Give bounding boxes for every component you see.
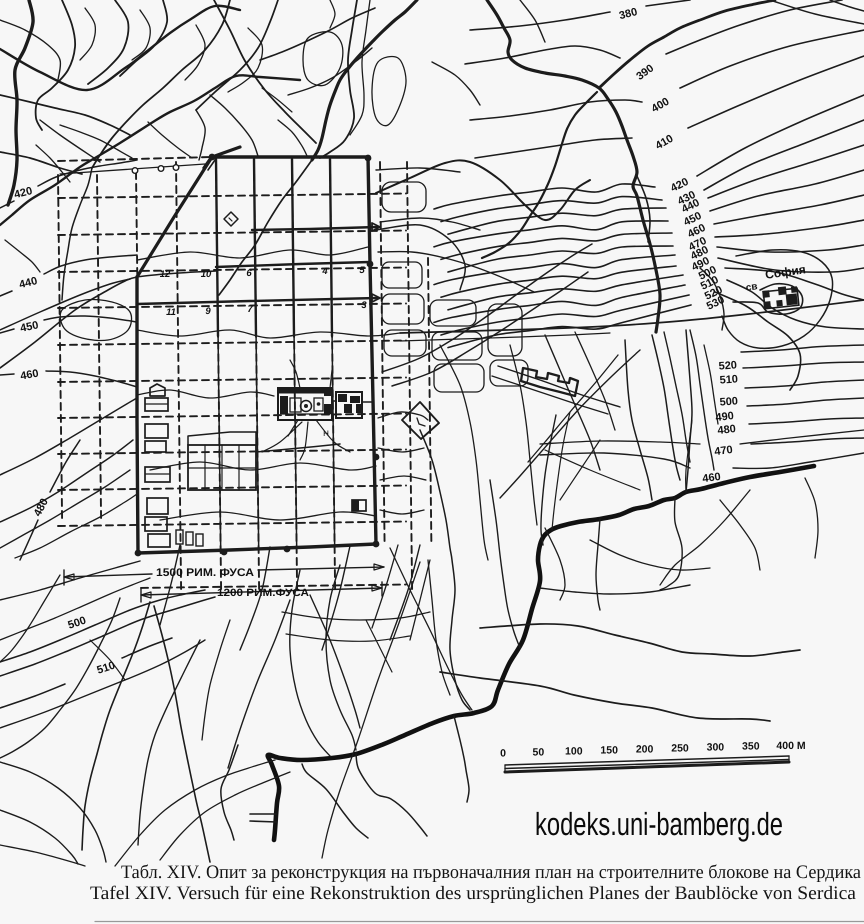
svg-text:0: 0: [500, 748, 506, 760]
svg-text:400 М: 400 М: [776, 740, 805, 752]
svg-text:1500 РИМ. ФУСА: 1500 РИМ. ФУСА: [156, 567, 254, 579]
svg-text:10: 10: [201, 269, 212, 280]
svg-text:150: 150: [600, 745, 618, 757]
svg-text:11: 11: [166, 307, 176, 318]
svg-text:3: 3: [361, 300, 367, 311]
svg-text:6: 6: [246, 268, 252, 279]
svg-text:490: 490: [715, 410, 735, 424]
svg-text:св: св: [745, 281, 758, 294]
svg-text:480: 480: [717, 423, 737, 437]
svg-text:7: 7: [247, 304, 253, 315]
svg-text:200: 200: [636, 744, 654, 756]
svg-text:470: 470: [714, 444, 734, 458]
svg-text:100: 100: [565, 746, 583, 758]
svg-text:kodeks.uni-bamberg.de: kodeks.uni-bamberg.de: [535, 806, 783, 842]
svg-text:250: 250: [671, 743, 689, 755]
svg-text:520: 520: [718, 359, 737, 372]
svg-text:460: 460: [702, 471, 722, 485]
svg-text:12: 12: [160, 269, 171, 280]
svg-text:Tafel XIV. Versuch für eine Re: Tafel XIV. Versuch für eine Rekonstrukti…: [90, 883, 857, 904]
svg-text:9: 9: [205, 306, 211, 317]
svg-text:50: 50: [533, 747, 545, 759]
svg-text:500: 500: [719, 395, 738, 408]
svg-text:350: 350: [742, 741, 760, 753]
svg-text:4: 4: [321, 266, 328, 277]
svg-text:300: 300: [707, 742, 725, 754]
svg-text:5: 5: [359, 265, 365, 276]
svg-text:510: 510: [719, 373, 738, 386]
svg-text:Табл. XIV. Опит за реконструкц: Табл. XIV. Опит за реконструкция на първ…: [121, 862, 862, 883]
